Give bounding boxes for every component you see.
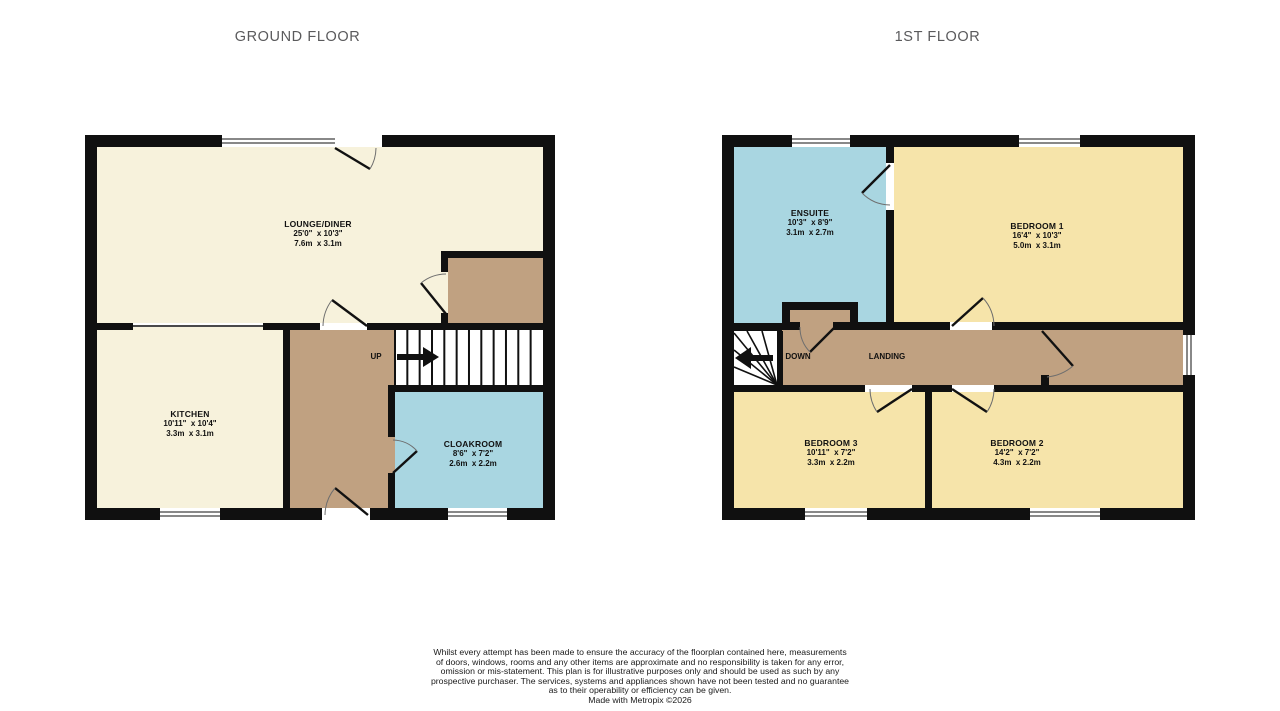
door-landing [1042, 331, 1073, 377]
door-bedroom-1 [952, 298, 994, 326]
first-floor-title: 1ST FLOOR [820, 29, 1055, 45]
room-size-imperial: 14'2" x 7'2" [917, 448, 1117, 458]
label-ensuite: ENSUITE 10'3" x 8'9" 3.1m x 2.7m [740, 208, 880, 238]
ground-floor-title: GROUND FLOOR [180, 29, 415, 45]
door-lounge-hall [323, 300, 367, 326]
room-size-imperial: 25'0" x 10'3" [218, 229, 418, 239]
room-name: KITCHEN [110, 409, 270, 419]
label-landing: LANDING [847, 352, 927, 362]
ground-floor-plan: LOUNGE/DINER 25'0" x 10'3" 7.6m x 3.1m K… [85, 135, 555, 520]
room-size-metric: 3.3m x 3.1m [110, 429, 270, 439]
room-name: BEDROOM 2 [917, 438, 1117, 448]
door-ensuite [862, 165, 890, 205]
room-name: ENSUITE [740, 208, 880, 218]
first-floor-plan: ENSUITE 10'3" x 8'9" 3.1m x 2.7m BEDROOM… [722, 135, 1195, 520]
room-size-metric: 4.3m x 2.2m [917, 458, 1117, 468]
made-with-credit: Made with Metropix ©2026 [340, 696, 940, 706]
room-size-imperial: 16'4" x 10'3" [937, 231, 1137, 241]
door-front [325, 488, 368, 515]
room-size-imperial: 10'3" x 8'9" [740, 218, 880, 228]
label-down: DOWN [778, 352, 818, 362]
room-name: BEDROOM 3 [751, 438, 911, 448]
door-bedroom-2 [952, 389, 994, 412]
label-lounge-diner: LOUNGE/DINER 25'0" x 10'3" 7.6m x 3.1m [218, 219, 418, 249]
label-kitchen: KITCHEN 10'11" x 10'4" 3.3m x 3.1m [110, 409, 270, 439]
door-lounge-patio [335, 148, 376, 169]
room-size-imperial: 8'6" x 7'2" [403, 449, 543, 459]
label-bedroom-1: BEDROOM 1 16'4" x 10'3" 5.0m x 3.1m [937, 221, 1137, 251]
label-cloakroom: CLOAKROOM 8'6" x 7'2" 2.6m x 2.2m [403, 439, 543, 469]
room-size-metric: 3.1m x 2.7m [740, 228, 880, 238]
room-size-metric: 7.6m x 3.1m [218, 239, 418, 249]
label-bedroom-3: BEDROOM 3 10'11" x 7'2" 3.3m x 2.2m [751, 438, 911, 468]
door-bedroom-3 [870, 389, 912, 412]
room-size-metric: 2.6m x 2.2m [403, 459, 543, 469]
door-vestibule [421, 274, 446, 314]
room-size-imperial: 10'11" x 10'4" [110, 419, 270, 429]
label-bedroom-2: BEDROOM 2 14'2" x 7'2" 4.3m x 2.2m [917, 438, 1117, 468]
room-size-metric: 3.3m x 2.2m [751, 458, 911, 468]
room-name: BEDROOM 1 [937, 221, 1137, 231]
room-name: CLOAKROOM [403, 439, 543, 449]
room-size-metric: 5.0m x 3.1m [937, 241, 1137, 251]
door-landing-cupboard [800, 327, 835, 352]
room-size-imperial: 10'11" x 7'2" [751, 448, 911, 458]
label-up: UP [361, 352, 391, 362]
disclaimer: Whilst every attempt has been made to en… [340, 648, 940, 706]
room-name: LOUNGE/DINER [218, 219, 418, 229]
floorplan-canvas: GROUND FLOOR 1ST FLOOR [0, 0, 1280, 711]
